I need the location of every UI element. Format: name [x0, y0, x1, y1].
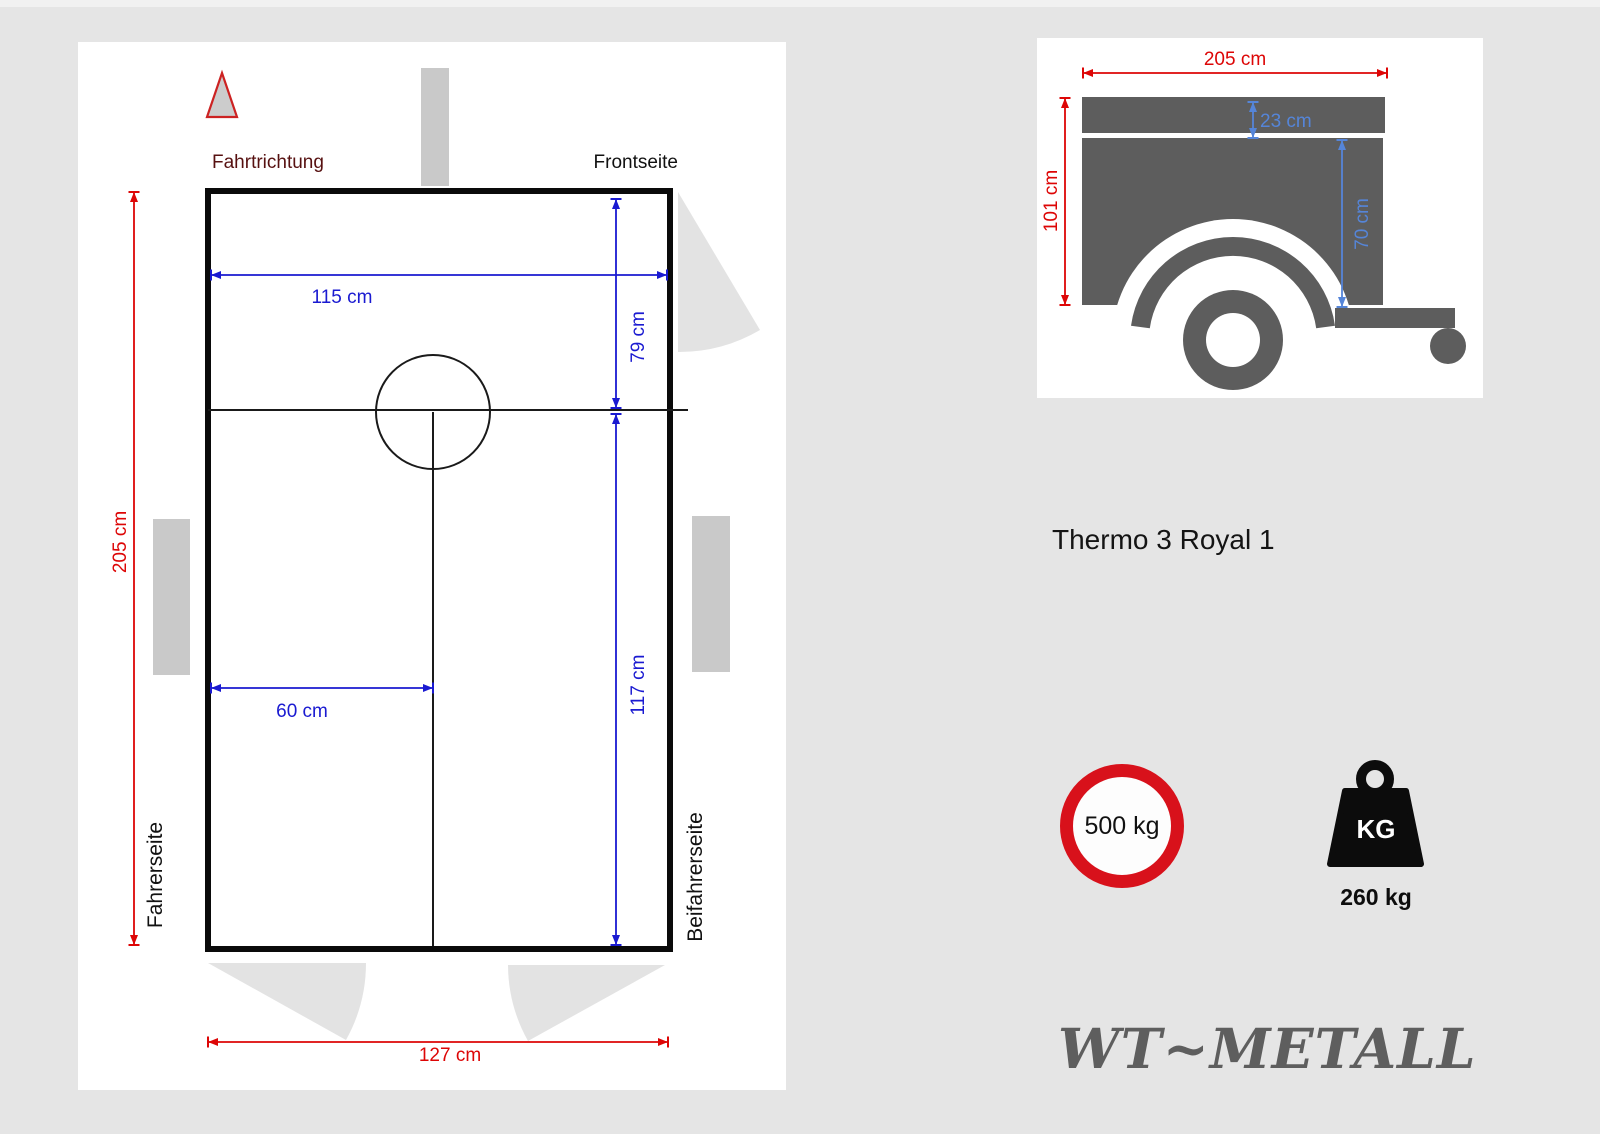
jockey-wheel-shape — [1430, 328, 1466, 364]
driver-side-label: Fahrerseite — [144, 822, 167, 928]
front-side-label: Frontseite — [594, 152, 678, 173]
front-door-swing-shape — [678, 192, 760, 352]
trailer-outline — [208, 191, 670, 949]
dim-label-axle-offset: 60 cm — [276, 701, 328, 722]
spec-sheet: 115 cm 79 cm 117 cm 60 cm 205 cm 127 cm … — [0, 0, 1600, 1134]
passenger-side-label: Beifahrerseite — [684, 812, 707, 942]
top-view-diagram: 115 cm 79 cm 117 cm 60 cm 205 cm 127 cm … — [78, 42, 786, 1090]
top-strip — [0, 0, 1600, 7]
kg-weight-icon: KG — [1316, 742, 1436, 872]
max-load-value: 500 kg — [1084, 812, 1159, 841]
drawbar-tongue-shape — [421, 68, 449, 186]
kg-weight-icon-svg: KG — [1316, 742, 1436, 872]
side-view-diagram: 205 cm 101 cm 23 cm 70 cm — [1037, 38, 1483, 398]
dim-label-lid-height: 23 cm — [1260, 111, 1312, 132]
direction-arrow-icon — [207, 73, 237, 117]
drawbar-shape — [1335, 308, 1455, 328]
product-title: Thermo 3 Royal 1 — [1052, 524, 1275, 556]
brand-logo: WT~METALL — [1058, 1016, 1498, 1081]
empty-weight-value: 260 kg — [1306, 884, 1446, 911]
top-view-panel: 115 cm 79 cm 117 cm 60 cm 205 cm 127 cm … — [78, 42, 786, 1090]
trailer-lid-shape — [1082, 97, 1385, 133]
dim-label-rear-width: 127 cm — [419, 1045, 481, 1066]
wheel-hub-shape — [1206, 313, 1260, 367]
dim-label-total-length: 205 cm — [110, 511, 131, 573]
side-view-panel: 205 cm 101 cm 23 cm 70 cm — [1037, 38, 1483, 398]
direction-label: Fahrtrichtung — [212, 152, 324, 173]
rear-right-door-swing-shape — [508, 965, 665, 1041]
dim-label-total-height: 101 cm — [1041, 170, 1062, 232]
dim-label-front-depth: 79 cm — [628, 311, 649, 363]
dim-label-rear-depth: 117 cm — [628, 655, 649, 716]
right-wheel-shape — [692, 516, 730, 672]
rear-left-door-swing-shape — [208, 963, 366, 1040]
left-wheel-shape — [153, 519, 190, 675]
dim-label-body-height: 70 cm — [1352, 198, 1373, 250]
max-load-sign: 500 kg — [1060, 764, 1184, 888]
kg-icon-label: KG — [1357, 814, 1396, 844]
dim-label-inner-width: 115 cm — [312, 287, 373, 308]
dim-label-side-length: 205 cm — [1204, 49, 1266, 70]
